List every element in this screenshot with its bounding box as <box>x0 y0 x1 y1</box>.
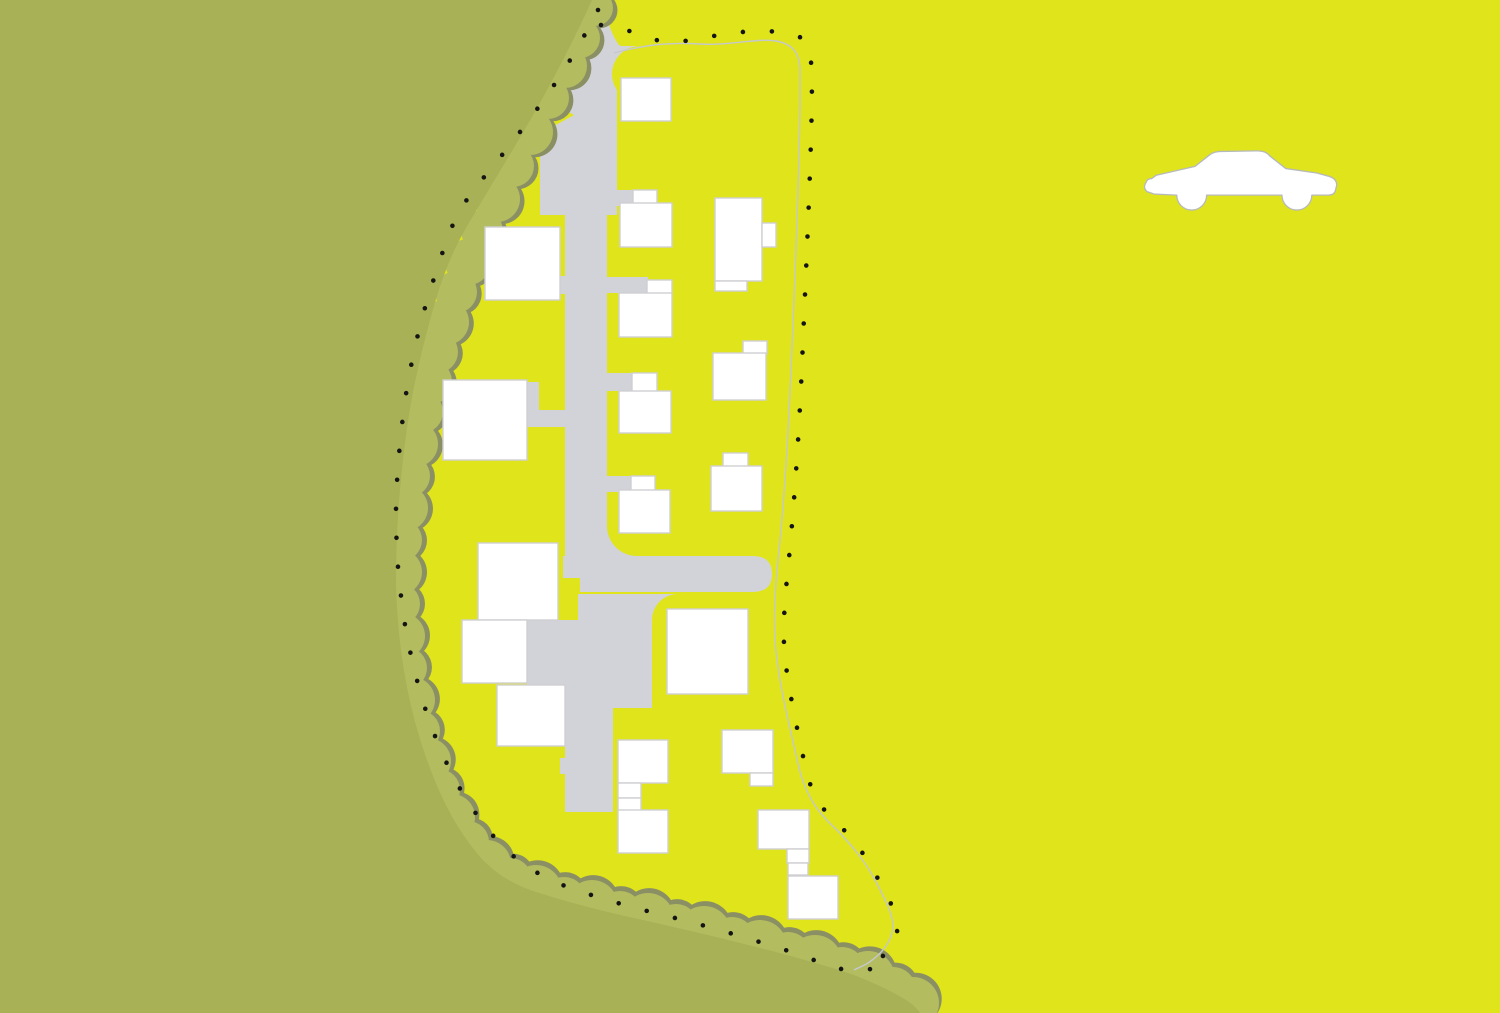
building-unit <box>715 281 747 291</box>
building-unit <box>787 849 809 863</box>
road-segment <box>527 620 578 685</box>
building-east-7 <box>788 876 838 919</box>
building-west-2 <box>443 380 527 460</box>
road-segment <box>565 200 607 578</box>
road-segment <box>560 758 582 774</box>
building-unit <box>443 380 527 460</box>
building-unit <box>618 810 668 853</box>
building-unit <box>478 543 558 620</box>
road-segment <box>605 277 648 293</box>
building-unit <box>750 773 773 786</box>
building-unit <box>715 198 762 281</box>
building-unit <box>788 863 808 875</box>
building-unit <box>758 810 809 849</box>
building-unit <box>618 798 641 811</box>
building-unit <box>632 373 657 392</box>
building-unit <box>711 466 762 511</box>
building-unit <box>618 783 641 798</box>
building-unit <box>619 391 671 433</box>
building-unit <box>619 490 670 533</box>
building-unit <box>743 341 767 354</box>
building-unit <box>621 78 671 121</box>
building-mid-1 <box>621 78 671 121</box>
road-segment <box>605 373 633 391</box>
building-unit <box>667 609 748 694</box>
road-segment <box>565 685 613 812</box>
building-unit <box>485 227 560 300</box>
site-plan-stage <box>0 0 1500 1013</box>
building-unit <box>620 203 672 247</box>
site-plan-map <box>0 0 1500 1013</box>
building-unit <box>788 876 838 919</box>
building-unit <box>713 353 766 400</box>
building-unit <box>462 620 527 683</box>
building-unit <box>722 730 773 773</box>
building-west-5 <box>497 685 565 746</box>
building-unit <box>647 280 672 294</box>
building-east-4 <box>667 609 748 694</box>
road-segment <box>540 145 583 215</box>
road-segment <box>563 556 772 592</box>
building-unit <box>497 685 565 746</box>
building-unit <box>762 223 776 247</box>
building-west-4 <box>462 620 527 683</box>
building-unit <box>633 190 657 204</box>
building-unit <box>723 453 748 467</box>
building-unit <box>631 476 655 491</box>
building-unit <box>618 740 668 783</box>
building-unit <box>619 293 672 337</box>
building-west-3 <box>478 543 558 620</box>
building-west-1 <box>485 227 560 300</box>
road-segment <box>527 410 568 427</box>
